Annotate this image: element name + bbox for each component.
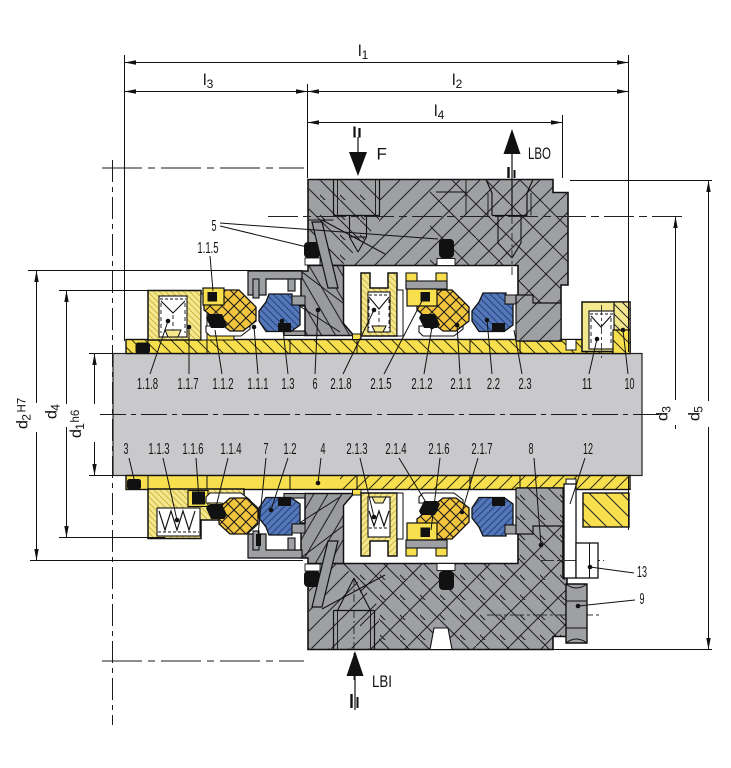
svg-text:2.1.6: 2.1.6 — [428, 441, 449, 458]
svg-text:2.1.1: 2.1.1 — [450, 376, 471, 393]
svg-text:LBO: LBO — [528, 144, 551, 163]
svg-text:1.1.7: 1.1.7 — [177, 376, 198, 393]
svg-text:1.1.8: 1.1.8 — [137, 376, 158, 393]
svg-text:10: 10 — [625, 376, 635, 393]
svg-text:2.1.8: 2.1.8 — [330, 376, 351, 393]
svg-text:1.1.5: 1.1.5 — [197, 240, 218, 257]
svg-text:1.1.3: 1.1.3 — [148, 441, 169, 458]
svg-text:5: 5 — [212, 218, 217, 235]
svg-text:1.2: 1.2 — [283, 441, 296, 458]
svg-text:LBI: LBI — [372, 672, 392, 691]
svg-text:2.1.2: 2.1.2 — [411, 376, 432, 393]
svg-text:13: 13 — [637, 564, 647, 581]
svg-text:1.1.2: 1.1.2 — [212, 376, 233, 393]
svg-text:2.3: 2.3 — [519, 376, 532, 393]
svg-text:1.1.6: 1.1.6 — [182, 441, 203, 458]
svg-text:2: 2 — [20, 414, 34, 421]
svg-text:2.1.4: 2.1.4 — [385, 441, 406, 458]
svg-text:5: 5 — [692, 406, 706, 413]
svg-text:2.1.7: 2.1.7 — [471, 441, 492, 458]
svg-text:11: 11 — [582, 376, 592, 393]
svg-text:8: 8 — [529, 441, 534, 458]
svg-text:9: 9 — [640, 591, 645, 608]
svg-text:1.3: 1.3 — [281, 376, 294, 393]
svg-text:3: 3 — [660, 406, 674, 413]
svg-text:F: F — [377, 145, 387, 164]
svg-text:3: 3 — [124, 441, 129, 458]
svg-text:4: 4 — [49, 404, 63, 411]
svg-text:2.1.3: 2.1.3 — [346, 441, 367, 458]
svg-text:2.2: 2.2 — [487, 376, 500, 393]
svg-text:6: 6 — [313, 376, 318, 393]
svg-text:7: 7 — [264, 441, 269, 458]
svg-text:1.1.4: 1.1.4 — [220, 441, 241, 458]
svg-text:2.1.5: 2.1.5 — [370, 376, 391, 393]
svg-text:4: 4 — [321, 441, 326, 458]
svg-text:1.1.1: 1.1.1 — [247, 376, 268, 393]
svg-text:h6: h6 — [70, 410, 82, 423]
svg-text:1: 1 — [73, 423, 87, 430]
svg-text:H7: H7 — [17, 398, 29, 413]
svg-text:12: 12 — [583, 441, 593, 458]
